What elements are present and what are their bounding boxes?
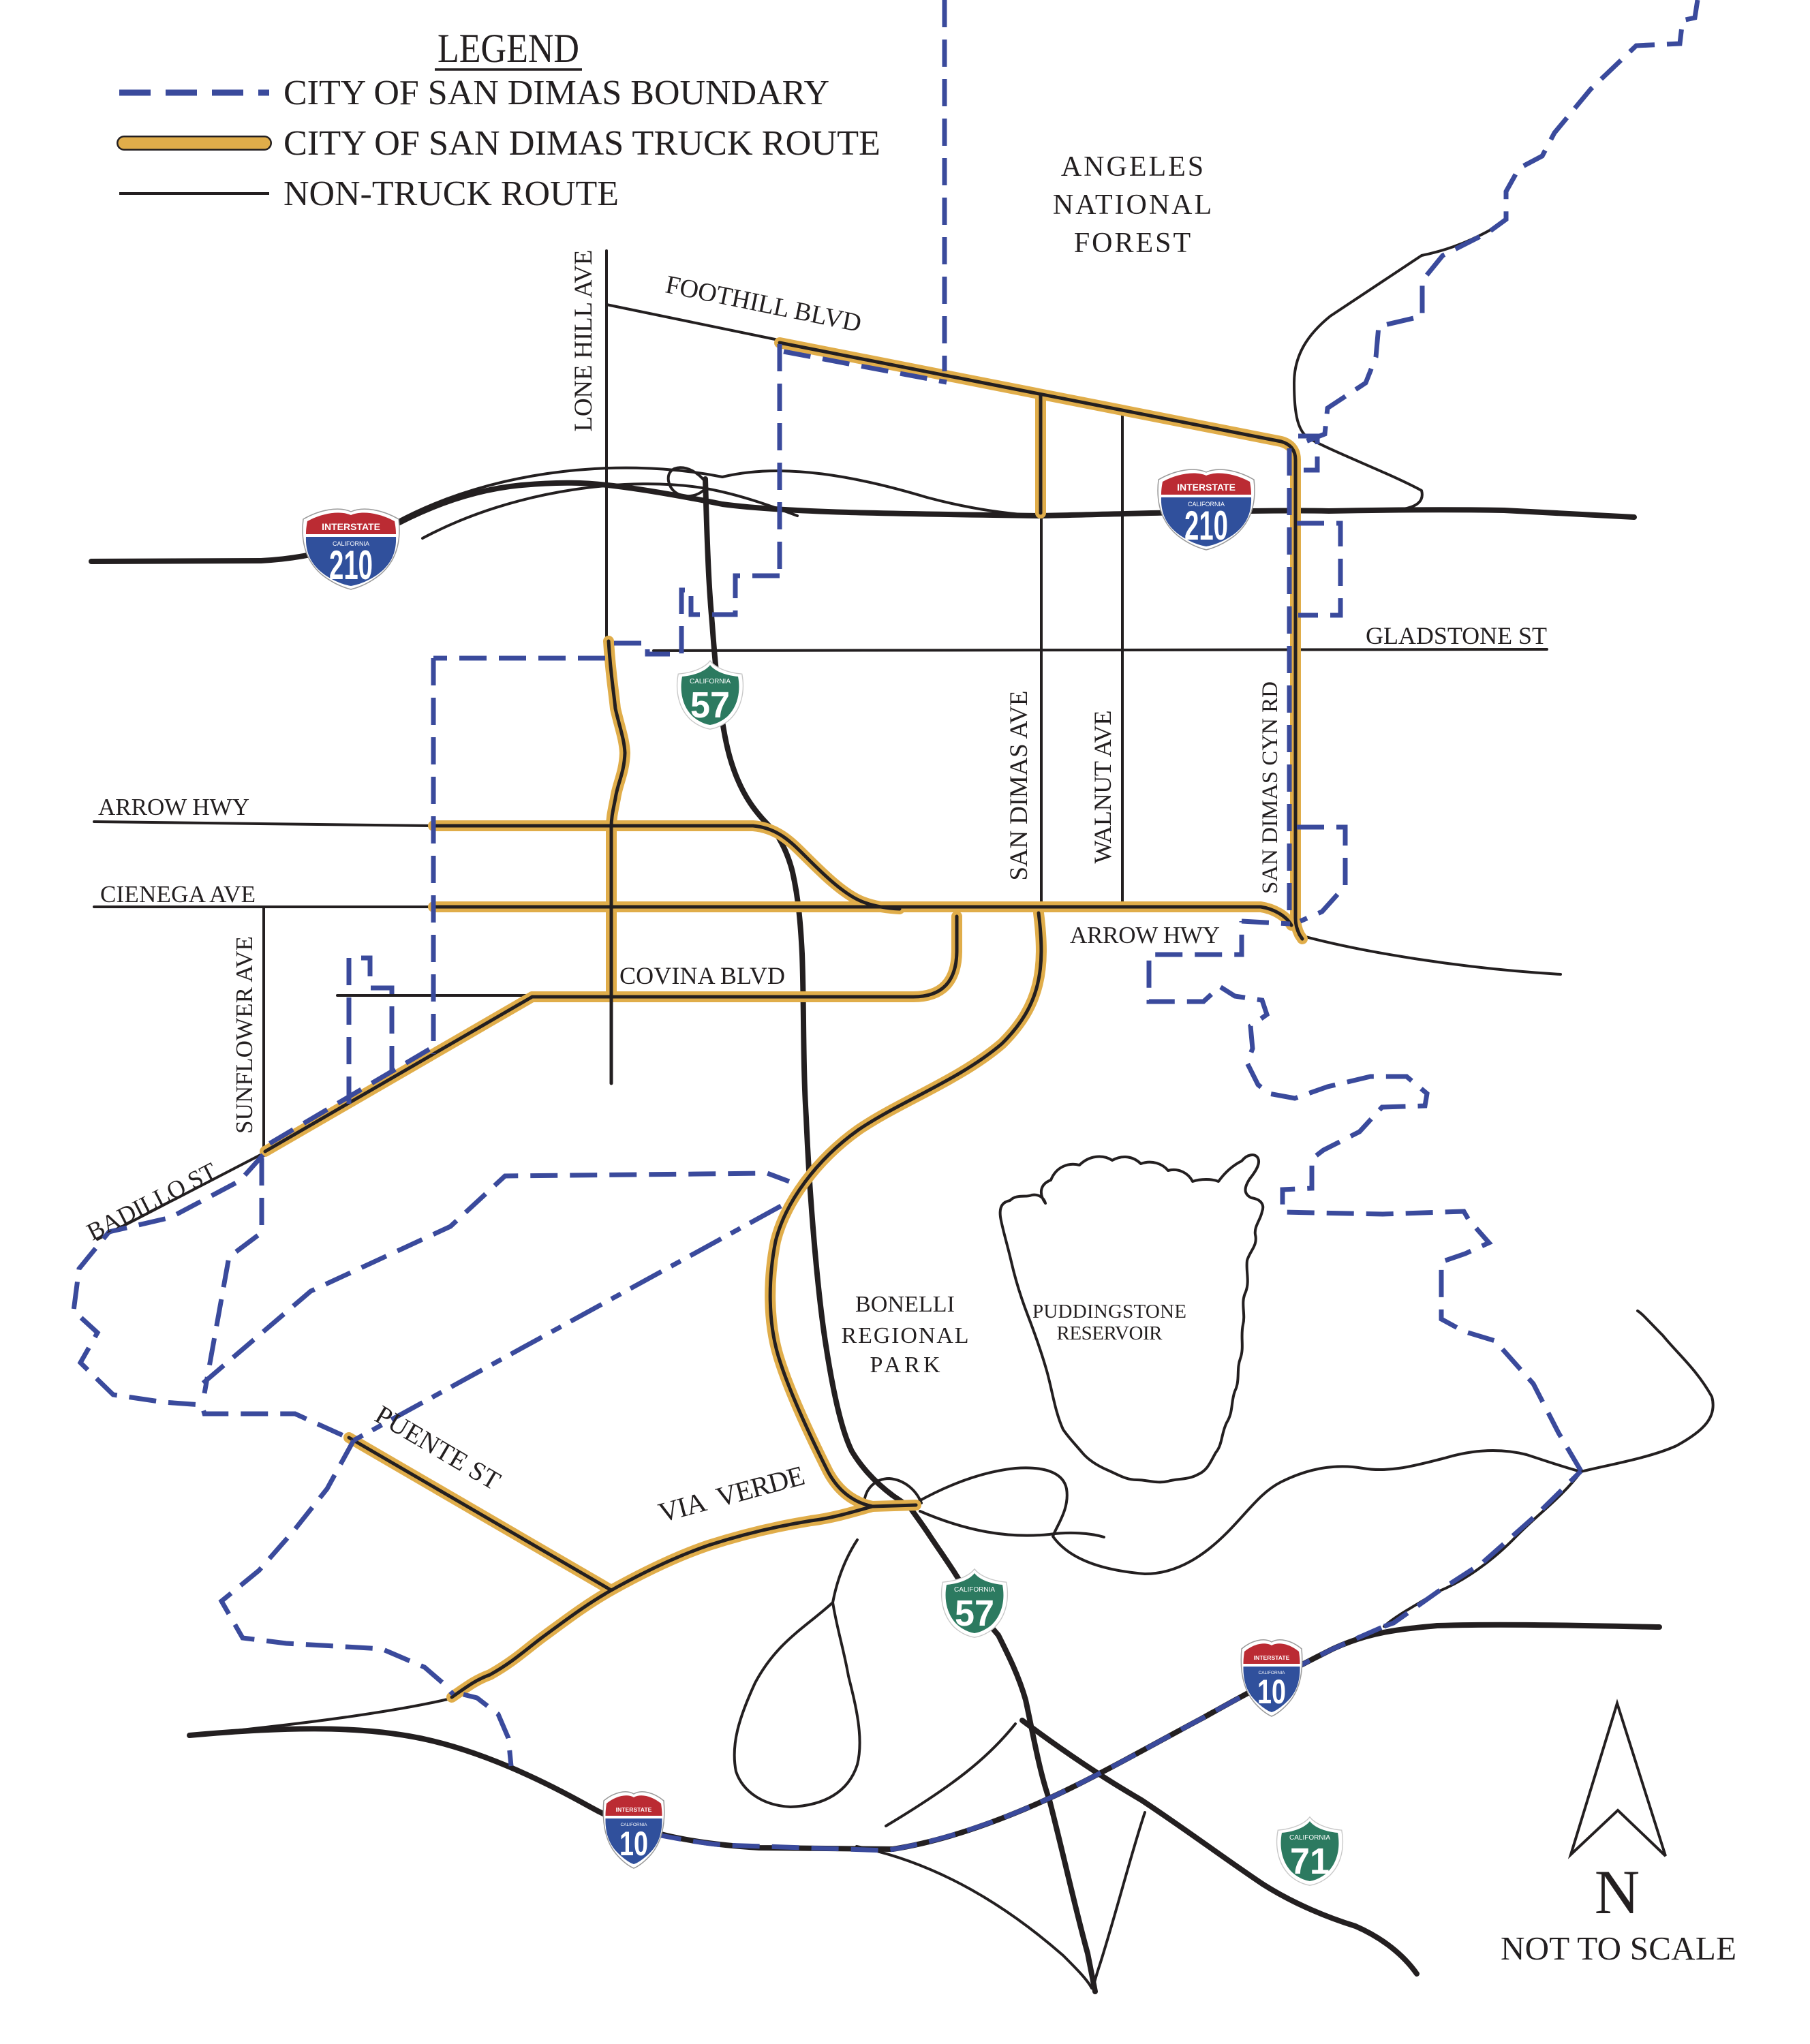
svg-text:210: 210	[329, 542, 373, 588]
svg-text:10: 10	[619, 1825, 648, 1863]
svg-text:10: 10	[1257, 1673, 1286, 1711]
svg-text:SUNFLOWER AVE: SUNFLOWER AVE	[231, 936, 258, 1134]
svg-text:CITY OF SAN DIMAS BOUNDARY: CITY OF SAN DIMAS BOUNDARY	[283, 74, 829, 112]
svg-text:LONE HILL AVE: LONE HILL AVE	[570, 250, 598, 432]
svg-text:SAN DIMAS CYN RD: SAN DIMAS CYN RD	[1258, 681, 1283, 894]
svg-text:LEGEND: LEGEND	[438, 26, 579, 71]
svg-text:57: 57	[690, 685, 730, 726]
svg-text:COVINA BLVD: COVINA BLVD	[619, 962, 785, 989]
svg-text:WALNUT AVE: WALNUT AVE	[1089, 711, 1116, 864]
svg-text:71: 71	[1290, 1841, 1330, 1882]
svg-text:210: 210	[1184, 503, 1228, 548]
svg-text:REGIONAL: REGIONAL	[842, 1323, 969, 1348]
svg-text:CITY OF SAN DIMAS TRUCK ROUTE: CITY OF SAN DIMAS TRUCK ROUTE	[283, 124, 880, 163]
svg-text:NATIONAL: NATIONAL	[1053, 189, 1214, 221]
svg-text:ARROW HWY: ARROW HWY	[98, 794, 249, 820]
svg-text:57: 57	[955, 1593, 994, 1634]
svg-text:CIENEGA AVE: CIENEGA AVE	[100, 881, 256, 908]
svg-text:PARK: PARK	[870, 1352, 940, 1378]
svg-text:ANGELES: ANGELES	[1061, 151, 1206, 183]
svg-text:SAN DIMAS AVE: SAN DIMAS AVE	[1005, 691, 1033, 881]
svg-text:NON-TRUCK ROUTE: NON-TRUCK ROUTE	[283, 174, 619, 213]
svg-text:N: N	[1595, 1857, 1640, 1927]
svg-text:NOT TO SCALE: NOT TO SCALE	[1501, 1930, 1736, 1967]
svg-text:FOREST: FOREST	[1074, 228, 1193, 259]
svg-text:RESERVOIR: RESERVOIR	[1057, 1322, 1163, 1344]
svg-text:BONELLI: BONELLI	[855, 1292, 955, 1317]
svg-text:PUDDINGSTONE: PUDDINGSTONE	[1032, 1301, 1186, 1322]
svg-text:GLADSTONE ST: GLADSTONE ST	[1366, 622, 1547, 649]
svg-text:ARROW HWY: ARROW HWY	[1070, 922, 1220, 948]
